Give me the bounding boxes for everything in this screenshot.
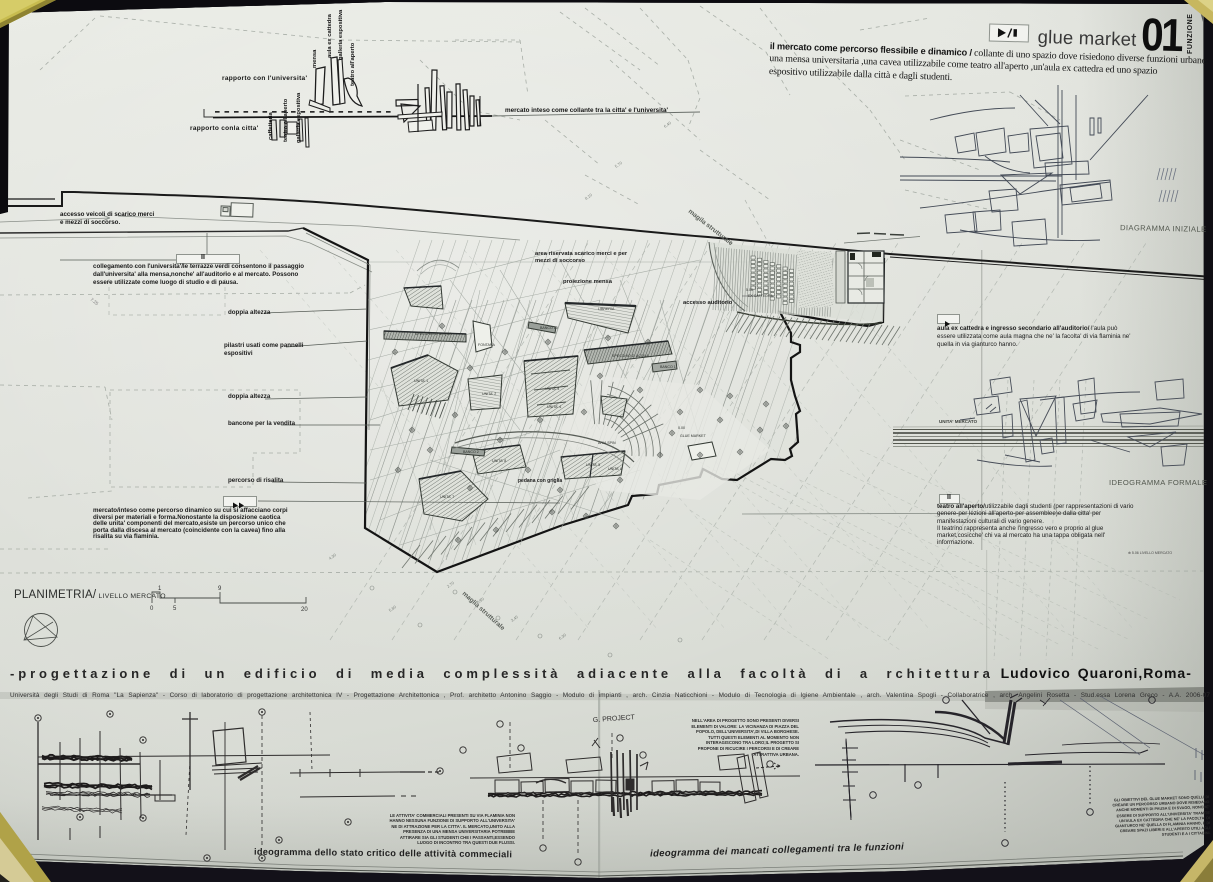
svg-text:20: 20 xyxy=(301,607,308,613)
svg-text:maglia strutturale: maglia strutturale xyxy=(461,590,507,632)
svg-text:magila strutturale: magila strutturale xyxy=(687,208,735,247)
svg-text:7.25: 7.25 xyxy=(89,297,99,307)
svg-text:1: 1 xyxy=(158,586,162,592)
svg-text:5: 5 xyxy=(173,606,177,612)
svg-text:0: 0 xyxy=(150,606,154,612)
svg-text:9: 9 xyxy=(218,586,222,592)
